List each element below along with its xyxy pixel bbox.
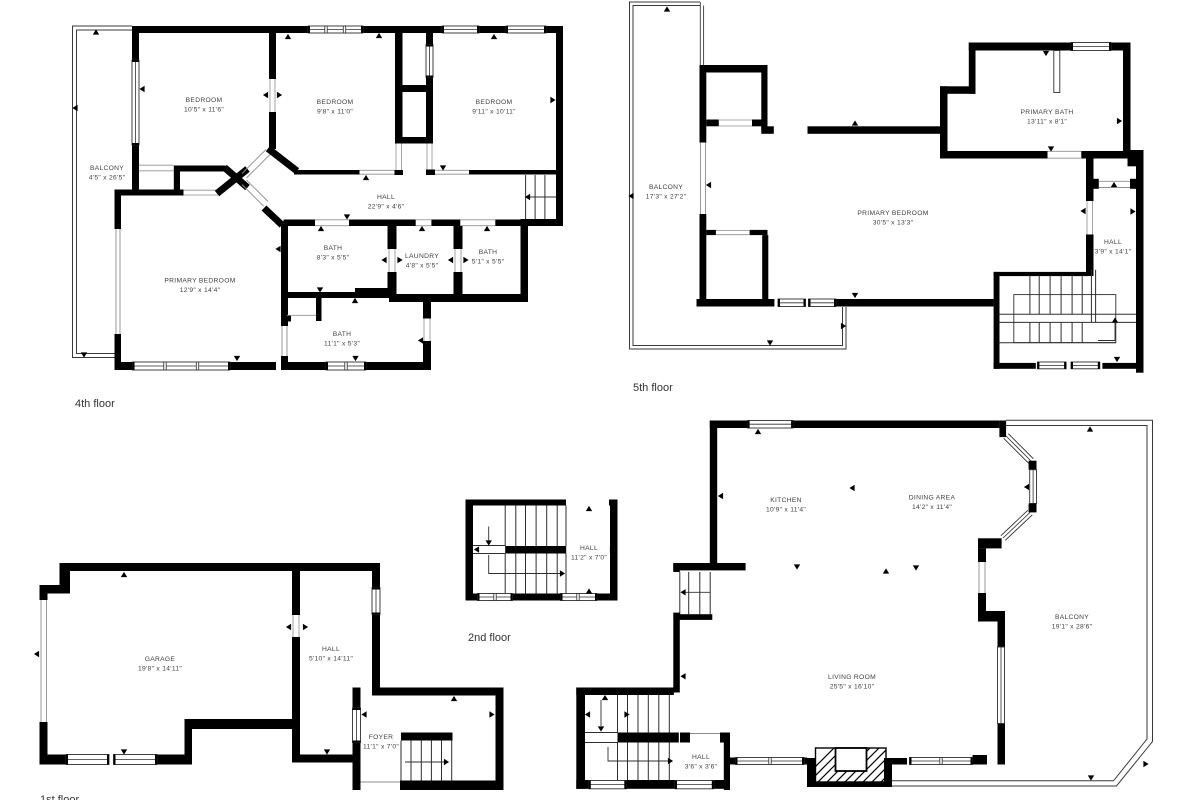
svg-text:KITCHEN: KITCHEN: [770, 497, 801, 504]
svg-text:3'6" x 3'6": 3'6" x 3'6": [685, 764, 718, 771]
svg-text:BALCONY: BALCONY: [1055, 614, 1089, 621]
svg-text:LAUNDRY: LAUNDRY: [405, 253, 439, 260]
svg-text:25'5" x 16'10": 25'5" x 16'10": [830, 684, 875, 691]
svg-text:11'1" x 7'0": 11'1" x 7'0": [363, 744, 399, 751]
svg-text:9'11" x 10'11": 9'11" x 10'11": [472, 109, 516, 116]
svg-text:LIVING ROOM: LIVING ROOM: [828, 674, 876, 681]
svg-text:8'3" x 5'5": 8'3" x 5'5": [317, 255, 350, 262]
svg-text:12'9" x 14'4": 12'9" x 14'4": [180, 287, 221, 294]
svg-text:10'5" x 11'6": 10'5" x 11'6": [184, 107, 224, 114]
svg-text:GARAGE: GARAGE: [145, 656, 176, 663]
svg-text:DINING AREA: DINING AREA: [909, 495, 956, 502]
svg-text:19'8" x 14'11": 19'8" x 14'11": [138, 666, 182, 673]
svg-text:4'8" x 5'5": 4'8" x 5'5": [406, 263, 439, 270]
svg-text:BEDROOM: BEDROOM: [317, 99, 354, 106]
svg-text:BATH: BATH: [333, 331, 352, 338]
svg-text:5'1" x 5'5": 5'1" x 5'5": [472, 259, 505, 266]
svg-text:HALL: HALL: [1104, 239, 1122, 246]
svg-text:9'8" x 11'0": 9'8" x 11'0": [317, 109, 353, 116]
svg-text:BALCONY: BALCONY: [649, 184, 683, 191]
svg-text:10'9" x 11'4": 10'9" x 11'4": [766, 507, 806, 514]
svg-text:3'9" x 14'1": 3'9" x 14'1": [1095, 249, 1132, 256]
svg-text:5th floor: 5th floor: [633, 382, 673, 394]
svg-text:5'10" x 14'11": 5'10" x 14'11": [309, 656, 353, 663]
svg-text:HALL: HALL: [377, 194, 395, 201]
svg-text:BATH: BATH: [324, 245, 343, 252]
svg-text:4th floor: 4th floor: [75, 398, 115, 410]
svg-text:PRIMARY BEDROOM: PRIMARY BEDROOM: [164, 277, 235, 284]
svg-text:BEDROOM: BEDROOM: [476, 99, 513, 106]
svg-text:14'2" x 11'4": 14'2" x 11'4": [912, 504, 952, 511]
svg-text:30'5" x 13'3": 30'5" x 13'3": [873, 220, 914, 227]
svg-text:2nd floor: 2nd floor: [468, 632, 511, 644]
svg-text:FOYER: FOYER: [369, 734, 394, 741]
svg-text:HALL: HALL: [322, 646, 340, 653]
svg-text:BEDROOM: BEDROOM: [186, 97, 223, 104]
svg-text:22'9" x 4'6": 22'9" x 4'6": [368, 204, 405, 211]
svg-text:11'1" x 5'3": 11'1" x 5'3": [324, 341, 360, 348]
svg-text:1st floor: 1st floor: [40, 794, 79, 800]
svg-text:17'3" x 27'2": 17'3" x 27'2": [646, 194, 687, 201]
svg-text:PRIMARY BATH: PRIMARY BATH: [1020, 109, 1073, 116]
svg-text:PRIMARY BEDROOM: PRIMARY BEDROOM: [857, 210, 928, 217]
svg-text:13'11" x 8'1": 13'11" x 8'1": [1027, 119, 1067, 126]
svg-text:BALCONY: BALCONY: [90, 165, 124, 172]
svg-text:BATH: BATH: [479, 249, 498, 256]
svg-text:HALL: HALL: [580, 545, 598, 552]
svg-text:4'5" x 26'5": 4'5" x 26'5": [89, 175, 126, 182]
svg-text:19'1" x 28'6": 19'1" x 28'6": [1052, 624, 1093, 631]
svg-text:11'2" x 7'0": 11'2" x 7'0": [571, 555, 607, 562]
svg-text:HALL: HALL: [692, 754, 710, 761]
